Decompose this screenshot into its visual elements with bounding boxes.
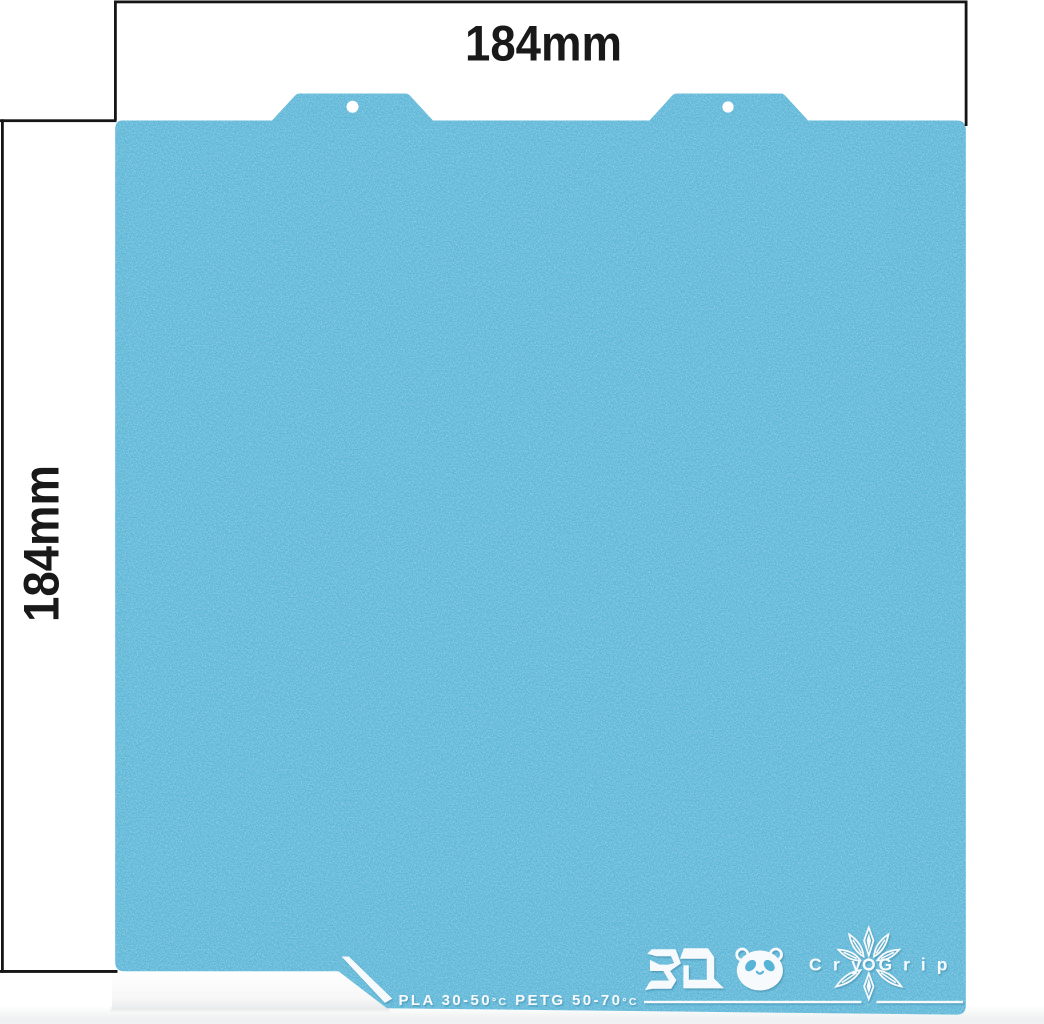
svg-text:PLA 30-50°C PETG 50-70°C: PLA 30-50°C PETG 50-70°C [399,992,637,1009]
svg-text:184mm: 184mm [14,465,70,622]
svg-text:184mm: 184mm [465,16,622,72]
